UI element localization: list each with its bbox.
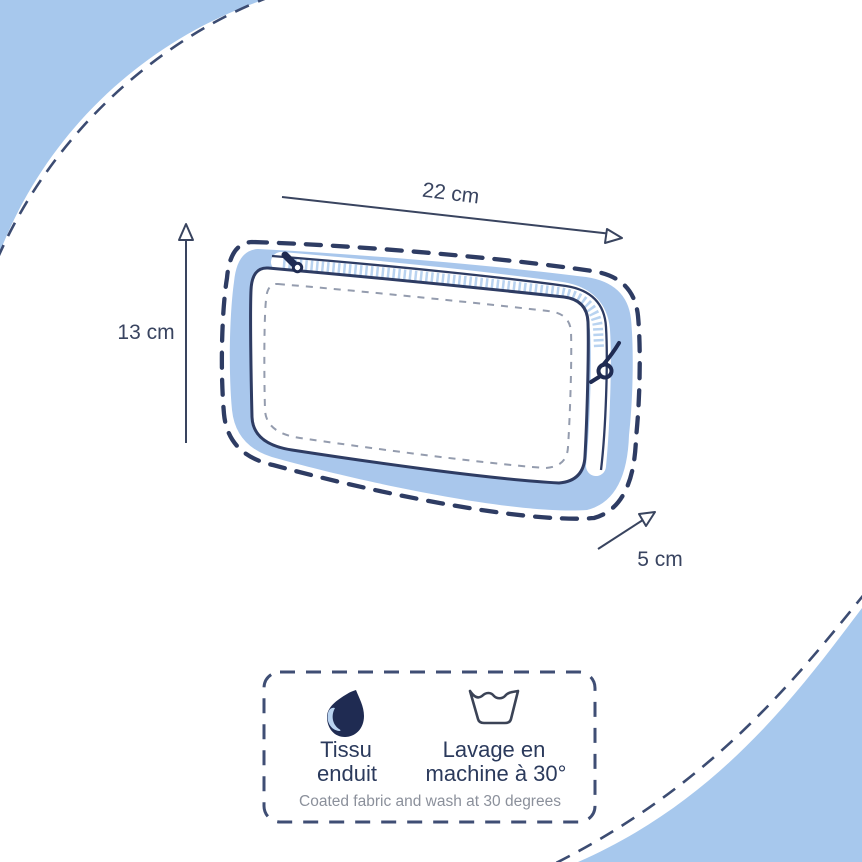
care-item-wash-line2: machine à 30° — [426, 761, 567, 786]
care-item-wash-line1: Lavage en — [443, 737, 546, 762]
care-caption: Coated fabric and wash at 30 degrees — [299, 793, 561, 810]
depth-dimension-label: 5 cm — [637, 548, 683, 571]
height-dimension-label: 13 cm — [117, 321, 174, 344]
pouch-front-panel — [251, 268, 589, 483]
care-item-fabric-line2: enduit — [317, 761, 377, 786]
zipper-pull-left-ring — [293, 263, 301, 271]
care-item-fabric-line1: Tissu — [320, 737, 372, 762]
pouch-diagram-canvas: 22 cm 13 cm 5 cm Tissu enduit Lavage en … — [0, 0, 862, 862]
